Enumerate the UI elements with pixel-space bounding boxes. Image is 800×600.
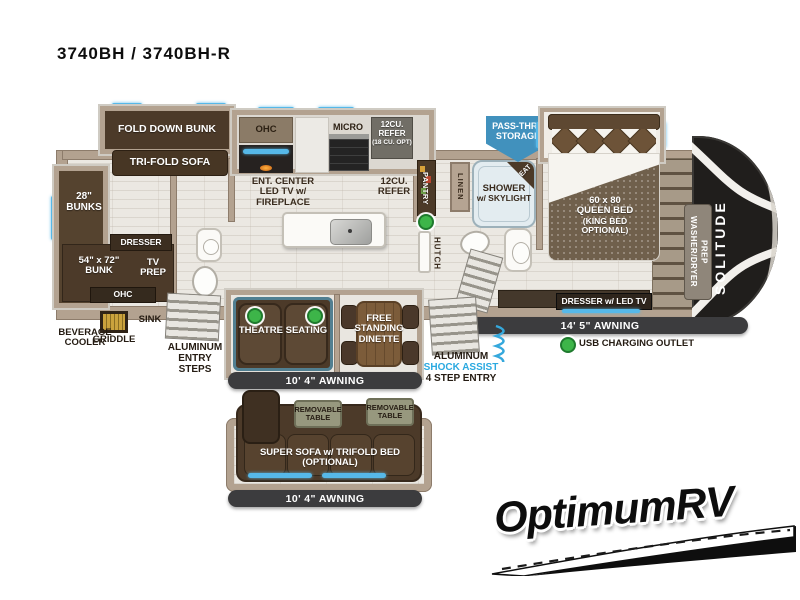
tv-prep-label: TV PREP bbox=[136, 258, 170, 279]
bed-pillows bbox=[552, 129, 656, 153]
entry-steps bbox=[165, 293, 221, 342]
pillow bbox=[627, 129, 656, 153]
kitchen-ohc: OHC bbox=[239, 117, 293, 143]
bath2-sink bbox=[512, 242, 530, 264]
removable-table: REMOVABLE TABLE bbox=[366, 398, 414, 426]
hutch-label: HUTCH bbox=[432, 231, 441, 275]
dinette-label: FREE STANDING DINETTE bbox=[349, 314, 409, 345]
micro-label: MICRO bbox=[327, 123, 369, 133]
entry-steps-label: ALUMINUM ENTRY STEPS bbox=[162, 343, 228, 375]
beverage-cooler-label: BEVERAGE COOLER bbox=[54, 328, 116, 349]
range-hood bbox=[329, 134, 369, 139]
linen-closet: LINEN bbox=[450, 162, 470, 212]
sofa-recliner-back bbox=[242, 390, 280, 444]
removable-table: REMOVABLE TABLE bbox=[294, 400, 342, 428]
washer-dryer-prep-label: WASHER/DRYER PREP bbox=[685, 205, 711, 299]
sink-label: SINK bbox=[132, 315, 168, 325]
usb-outlet-dot bbox=[307, 308, 323, 324]
main-awning-bar: 10' 4" AWNING bbox=[228, 372, 422, 389]
queen-bed-label: 60 x 80 QUEEN BED (KING BED OPTIONAL) bbox=[557, 196, 653, 235]
super-sofa-label: SUPER SOFA w/ TRIFOLD BED (OPTIONAL) bbox=[250, 448, 410, 469]
sofa-awning-bar: 10' 4" AWNING bbox=[228, 490, 422, 507]
ent-center-label: ENT. CENTER LED TV w/ FIREPLACE bbox=[232, 177, 334, 208]
slide-divider bbox=[334, 294, 340, 374]
theatre-seating-label: THEATRE SEATING bbox=[235, 326, 331, 336]
shower: SEAT SHOWER w/ SKYLIGHT bbox=[472, 160, 536, 228]
bunkroom-dresser: DRESSER bbox=[110, 234, 172, 251]
solitude-brand-text: SOLITUDE bbox=[712, 196, 732, 300]
bath1-sink bbox=[203, 239, 219, 255]
linen-label: LINEN bbox=[450, 162, 470, 212]
bunkroom-ohc: OHC bbox=[90, 287, 156, 303]
wall-bedroom-divider bbox=[536, 158, 543, 250]
pantry-label: PANTRY bbox=[421, 164, 429, 212]
fold-down-bunk-label: FOLD DOWN BUNK bbox=[118, 124, 216, 135]
island-sink bbox=[330, 219, 372, 245]
tri-fold-sofa: TRI-FOLD SOFA bbox=[112, 150, 228, 176]
bunkroom-ohc-label: OHC bbox=[114, 290, 133, 299]
kitchen-island bbox=[282, 212, 386, 248]
refrigerator: 12CU. REFER (18 CU. OPT) bbox=[371, 117, 413, 159]
bunkroom-dresser-label: DRESSER bbox=[120, 238, 161, 247]
bath1-toilet bbox=[192, 266, 218, 297]
tri-fold-sofa-label: TRI-FOLD SOFA bbox=[130, 157, 211, 168]
bunk-54x72-label: 54" x 72" BUNK bbox=[68, 256, 130, 277]
bunks-28-label: 28" BUNKS bbox=[58, 192, 110, 214]
led-tv-accent bbox=[243, 149, 289, 154]
usb-outlet-dot bbox=[418, 214, 434, 230]
usb-legend-dot bbox=[560, 337, 576, 353]
led-tv-accent bbox=[562, 309, 640, 313]
kitchen-ohc-label: OHC bbox=[255, 125, 276, 135]
bath1-vanity bbox=[196, 228, 222, 262]
fold-down-bunk-slide: FOLD DOWN BUNK bbox=[100, 106, 234, 154]
refer-opt-label: (18 CU. OPT) bbox=[371, 139, 413, 146]
hutch-counter bbox=[418, 231, 431, 273]
pantry: PANTRY bbox=[417, 160, 436, 216]
shower-label: SHOWER w/ SKYLIGHT bbox=[474, 184, 534, 203]
window-accent bbox=[322, 473, 386, 478]
window-accent bbox=[248, 473, 312, 478]
optimumrv-logo: OptimumRV bbox=[490, 486, 798, 576]
floorplan-title: 3740BH / 3740BH-R bbox=[57, 44, 231, 64]
range-oven bbox=[329, 134, 369, 171]
usb-outlet-dot bbox=[247, 308, 263, 324]
floorplan-page: 3740BH / 3740BH-R SOLITUDE WASHER/DRYER … bbox=[0, 0, 800, 600]
shock-assist-steps bbox=[428, 296, 480, 355]
washer-dryer-prep: WASHER/DRYER PREP bbox=[684, 204, 712, 300]
island-sink-drain bbox=[348, 229, 352, 233]
bed-mattress: 60 x 80 QUEEN BED (KING BED OPTIONAL) bbox=[548, 153, 660, 261]
fireplace-glow bbox=[260, 165, 272, 171]
entertainment-center-unit bbox=[239, 145, 293, 173]
refer-label: 12CU. REFER bbox=[371, 121, 413, 139]
usb-legend-label: USB CHARGING OUTLET bbox=[579, 339, 709, 349]
bed-headboard bbox=[548, 114, 660, 130]
shock-assist-label: ALUMINUM SHOCK ASSIST 4 STEP ENTRY bbox=[420, 352, 502, 384]
bath2-vanity bbox=[504, 228, 532, 272]
refer-floor-label: 12CU. REFER bbox=[372, 177, 416, 198]
dresser-led-tv-labelbox: DRESSER w/ LED TV bbox=[556, 293, 652, 310]
kitchen-counter bbox=[295, 117, 329, 173]
